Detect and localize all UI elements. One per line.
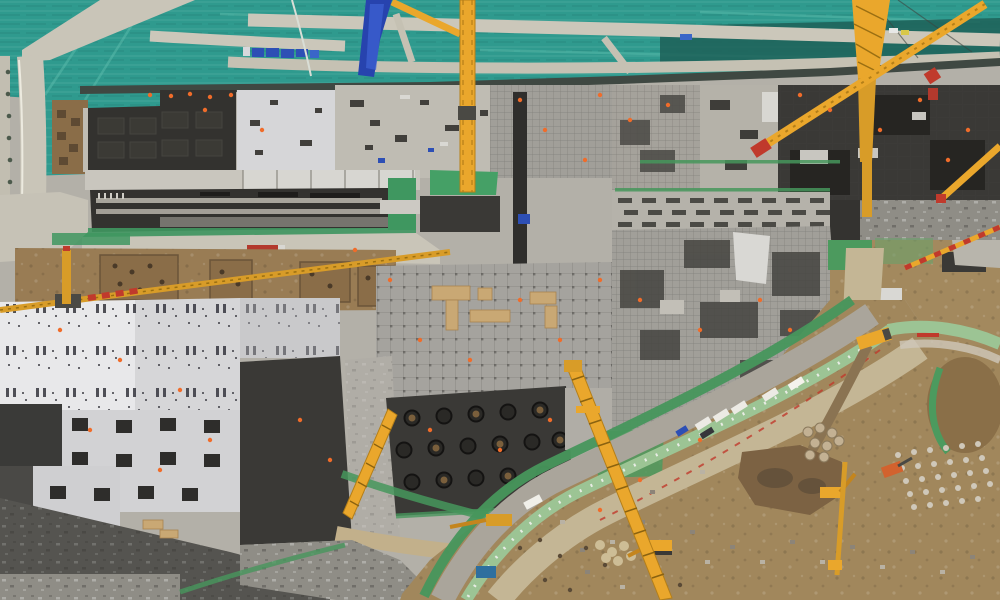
- white-tarp-big: [733, 232, 770, 284]
- crane-1-mast: [460, 0, 475, 192]
- slabB: [237, 90, 335, 172]
- red-container: [928, 88, 938, 100]
- podium-stripe1: [96, 198, 382, 203]
- crane-1-cab: [458, 106, 476, 120]
- column-slab-marks: [0, 300, 240, 410]
- blockA-walkway: [83, 108, 88, 172]
- blue-dumpster: [476, 566, 496, 578]
- green-line-K1: [640, 160, 840, 164]
- crane-8-mast: [62, 250, 71, 304]
- dark-patch-center: [420, 196, 500, 232]
- green-strip-pavement: [52, 233, 130, 245]
- crane-6-head: [564, 360, 582, 372]
- formwork-slabR: [240, 356, 352, 545]
- rubble-corner-SW-tex: [0, 574, 180, 600]
- podium-stripe2: [96, 209, 384, 214]
- crane-2-mast-foot: [862, 162, 872, 217]
- road-left-strip: [0, 56, 10, 208]
- road-left-vertical: [30, 56, 33, 204]
- corridor-trenches: [618, 198, 830, 227]
- crane-6-jib: [576, 406, 600, 413]
- gray-slab-upperR-marks: [240, 298, 340, 358]
- crane-3-red-tip: [936, 194, 946, 203]
- rebar-matF-mesh: [490, 85, 612, 178]
- dark-patch-SW: [0, 404, 62, 466]
- crane-9-base: [828, 560, 842, 570]
- green-line-K2: [615, 188, 830, 192]
- blue-tarp-dot: [518, 214, 530, 224]
- crane-8: [62, 246, 71, 304]
- white-slab-bit: [380, 200, 420, 214]
- aerial-photo: [0, 0, 1000, 600]
- podium-lower-deck: [160, 217, 388, 227]
- crane-8-red-tip: [63, 246, 70, 251]
- red-barrier-short: [917, 333, 939, 337]
- dark-trench-strip: [513, 92, 527, 270]
